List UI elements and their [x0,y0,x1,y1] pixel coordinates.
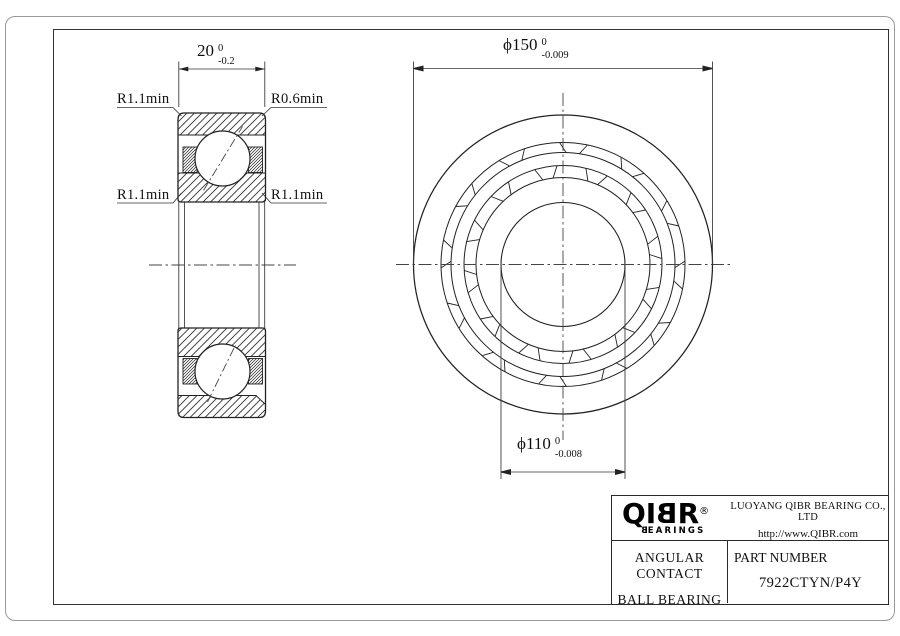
title-block-header-row: QIBR® BEARINGS LUOYANG QIBR BEARING CO.,… [612,496,888,540]
cage-section-top-right [249,147,263,173]
width-dimension: 20 0 -0.2 [197,42,235,68]
bore-tol-lower: -0.008 [555,449,582,462]
arrow-left [179,67,189,72]
part-number-cell: PART NUMBER 7922CTYN/P4Y [728,541,888,603]
radius-label-mid-right: R1.1min [271,188,323,203]
outer-diameter-dimension: ϕ150 0 -0.009 [503,36,569,62]
front-view [396,62,730,480]
company-logo: QIBR® BEARINGS [612,496,728,540]
radius-label-mid-left: R1.1min [117,188,169,203]
arrow-od-right [703,66,713,71]
radius-label-top-left: R1.1min [117,92,169,107]
ball-bottom [195,344,250,399]
title-block-detail-row: ANGULAR CONTACT BALL BEARING PART NUMBER… [612,540,888,603]
product-type-line1: ANGULAR CONTACT [612,550,727,582]
product-type-cell: ANGULAR CONTACT BALL BEARING [612,541,728,603]
drawing-sheet: 20 0 -0.2 ϕ150 0 -0.009 ϕ110 0 -0.008 R1… [0,0,900,636]
company-info: LUOYANG QIBR BEARING CO., LTD http://www… [728,496,888,540]
product-type-line2: BALL BEARING [612,592,727,608]
registered-mark: ® [699,506,709,517]
bore-diameter-dimension: ϕ110 0 -0.008 [517,435,582,461]
width-value: 20 [197,42,214,68]
od-value: ϕ150 [503,36,537,62]
part-number-label: PART NUMBER [734,550,888,566]
section-view [117,62,327,418]
width-tol-upper: 0 [218,43,235,56]
title-block: QIBR® BEARINGS LUOYANG QIBR BEARING CO.,… [611,495,889,605]
width-dimension-lines [179,62,265,108]
arrow-bore-right [616,470,626,475]
od-tol-lower: -0.009 [541,50,568,63]
width-tol-lower: -0.2 [218,56,235,69]
arrow-od-left [414,66,424,71]
bore-value: ϕ110 [517,435,551,461]
logo-tagline: BEARINGS [639,526,728,536]
arrow-right [255,67,264,72]
company-name: LUOYANG QIBR BEARING CO., LTD [728,501,888,523]
company-website: http://www.QIBR.com [728,528,888,540]
bore-tol-upper: 0 [555,436,582,449]
arrow-bore-left [501,470,511,475]
cage-section-bottom-right [249,359,263,385]
od-tol-upper: 0 [541,37,568,50]
radius-label-top-right: R0.6min [271,92,323,107]
logo-part2: B [656,501,677,527]
logo-wordmark: QIBR® [622,499,728,527]
logo-tagline-b: B [639,526,648,536]
part-number-value: 7922CTYN/P4Y [759,575,888,592]
